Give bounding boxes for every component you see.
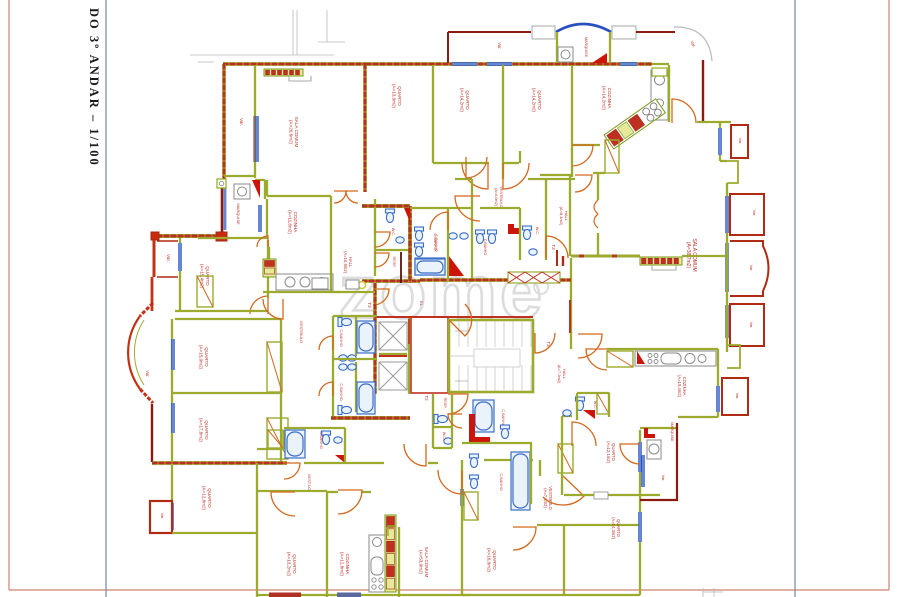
svg-text:T2: T2 [424,395,429,401]
svg-text:C.BANHO: C.BANHO [483,239,487,256]
svg-text:MARQUISE: MARQUISE [584,37,588,58]
svg-text:C.BANHO: C.BANHO [339,383,343,400]
svg-text:Var.: Var. [735,393,740,400]
svg-text:(A=7,3m2): (A=7,3m2) [557,365,562,384]
svg-text:SALA COMUM: SALA COMUM [294,117,299,148]
svg-text:COZINHA: COZINHA [345,554,350,576]
svg-text:RESP.: RESP. [392,257,396,268]
svg-text:RESP.: RESP. [443,398,447,409]
svg-text:VESTIBULO: VESTIBULO [299,321,304,343]
svg-text:(A=14,2m2): (A=14,2m2) [531,88,536,113]
svg-text:W.C.: W.C. [535,227,539,235]
svg-text:QUARTO: QUARTO [492,550,497,570]
svg-text:(A=14,2m2): (A=14,2m2) [601,86,606,111]
svg-text:QUARTO: QUARTO [465,90,470,110]
svg-text:T3: T3 [367,302,372,308]
svg-text:MARQUISE: MARQUISE [670,422,674,442]
svg-text:COZINHA: COZINHA [293,212,298,234]
svg-text:MARQUISE: MARQUISE [236,203,241,225]
svg-text:Var.: Var. [738,138,743,145]
svg-text:C.BANHO: C.BANHO [499,473,503,490]
svg-text:VEST.LO: VEST.LO [307,474,312,490]
svg-text:QUARTO: QUARTO [207,488,212,508]
svg-text:(A=16,0m2): (A=16,0m2) [486,548,491,573]
svg-text:Var.: Var. [497,42,502,49]
svg-text:(A=11,8m2): (A=11,8m2) [287,210,292,234]
svg-text:(A=17,8m2): (A=17,8m2) [198,418,203,443]
svg-text:T3: T3 [551,244,556,250]
svg-text:Var.: Var. [749,265,754,272]
svg-text:(A=10,9m2): (A=10,9m2) [343,251,348,274]
svg-text:QUARTO: QUARTO [292,554,297,574]
svg-text:(A=14,3m2): (A=14,3m2) [611,517,616,540]
svg-text:QUARTO: QUARTO [537,90,542,110]
svg-text:QUARTO: QUARTO [204,347,209,367]
svg-text:EL.: EL. [419,301,424,307]
svg-text:(A=53,0m2): (A=53,0m2) [418,550,423,575]
svg-text:Var.: Var. [239,118,244,126]
svg-text:SALA COMUM: SALA COMUM [424,547,429,578]
svg-text:(A=13,0m2): (A=13,0m2) [391,84,396,109]
svg-text:(A=12,8m2): (A=12,8m2) [201,486,206,511]
svg-text:(A=13,2m2): (A=13,2m2) [286,552,291,577]
svg-text:Var.: Var. [160,513,165,520]
svg-text:(A=26,6m2): (A=26,6m2) [288,120,293,145]
svg-text:(A=6,0m2): (A=6,0m2) [494,188,498,207]
svg-text:COZINHA: COZINHA [607,88,612,110]
svg-text:C.BANHO: C.BANHO [433,233,437,250]
svg-text:QUARTO: QUARTO [397,86,402,106]
svg-text:DO 3º ANDAR – 1/100: DO 3º ANDAR – 1/100 [87,8,101,167]
svg-text:C.BANHO: C.BANHO [501,409,505,426]
svg-text:(A=15,4m2): (A=15,4m2) [677,375,682,398]
svg-text:C.BANHO: C.BANHO [319,431,323,448]
svg-text:(A=12,8m2): (A=12,8m2) [339,552,344,577]
svg-text:(A=12,1m2): (A=12,1m2) [606,441,611,464]
svg-text:Var.: Var. [752,210,757,217]
svg-text:(A=14,2m2): (A=14,2m2) [459,88,464,113]
svg-text:(A=8,4m2): (A=8,4m2) [559,207,564,226]
svg-text:Var.: Var. [166,254,171,262]
svg-text:QUARTO: QUARTO [204,420,209,440]
svg-text:(A=15,0m2): (A=15,0m2) [198,345,203,370]
svg-text:W.C.: W.C. [391,228,395,236]
svg-text:Var.: Var. [749,322,754,329]
svg-text:C.BANHO: C.BANHO [339,329,343,346]
svg-text:Var.: Var. [145,370,150,377]
svg-text:Var.: Var. [661,475,666,482]
